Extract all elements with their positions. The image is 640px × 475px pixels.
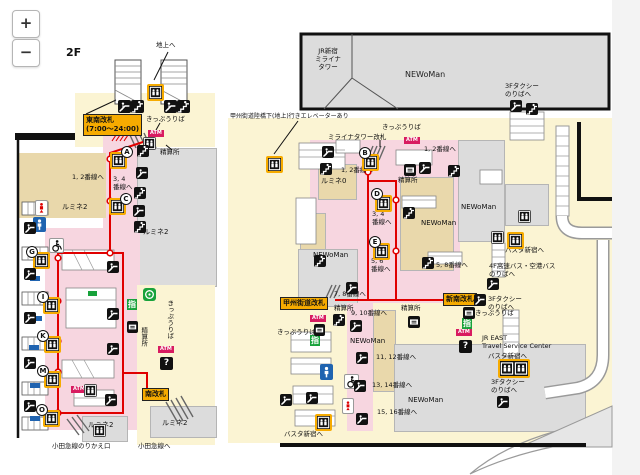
escalator-icon (280, 394, 292, 406)
stairs-icon (320, 163, 332, 175)
newoman-top-label: NEWoMan (405, 70, 445, 80)
escalator-icon (118, 100, 131, 113)
platform-sign (30, 416, 40, 421)
bus-4f-label: 4F高速バス・空港バスのりばへ (489, 263, 555, 279)
gate-miraina-label: ミライナタワー改札 (328, 134, 386, 142)
elevator-icon (491, 231, 504, 244)
right-platform-3-4-label: 3, 4番線へ (372, 211, 392, 227)
right-ticket-office-top-label: きっぷうりば (382, 124, 421, 132)
newoman-central-label: NEWoMan (421, 219, 456, 227)
stairs-icon (177, 100, 190, 113)
platform-sign (29, 345, 39, 350)
escalator-icon (350, 320, 362, 332)
jr-east-travel-service-center-label: JR EASTTravel Service Center (482, 335, 551, 351)
atm-icon: ATM (404, 137, 420, 144)
right-shop-tan-west (300, 213, 326, 251)
escalator-icon (24, 268, 36, 280)
elevator-icon (266, 156, 283, 173)
page-right-margin (612, 0, 640, 475)
tower-building-label: JR新宿ミライナタワー (306, 48, 350, 71)
elevator-icon (93, 424, 106, 437)
right-shop-tan-south (373, 310, 396, 392)
left-platform-1-2-label: 1, 2番線へ (72, 174, 104, 182)
left-ticket-office-label: きっぷうりば (146, 116, 185, 124)
elevator-letter-b: B (359, 147, 371, 159)
ticket-machine-icon (127, 321, 138, 333)
right-fare-adjustment-mid-label: 精算所 (398, 177, 418, 185)
reserved-seat-icon: 指 (462, 318, 472, 329)
escalator-icon (24, 312, 36, 324)
right-platform-15-16-label: 15, 16番線へ (377, 409, 417, 417)
elevator-letter-i: I (37, 291, 49, 303)
stairs-icon (314, 255, 326, 267)
newoman-south-label: NEWoMan (408, 396, 443, 404)
left-fare-adjustment-label: 精算所 (160, 149, 180, 157)
elevator-letter-k: K (37, 330, 49, 342)
lumine2-east-label: ルミネ2 (143, 228, 168, 236)
escalator-icon (107, 261, 119, 273)
station-map-canvas[interactable]: + − 2F (0, 0, 640, 475)
left-fare-adjustment-south-label: 精算所 (139, 327, 147, 347)
reserved-seat-machine-icon (143, 288, 156, 301)
escalator-icon (107, 343, 119, 355)
ticket-machine-icon (408, 316, 420, 328)
escalator-icon (419, 162, 431, 174)
gate-koshu-kaido-label: 甲州街道改札 (280, 297, 328, 310)
escalator-icon (322, 146, 334, 158)
elevator-icon (315, 414, 332, 431)
escalator-icon (105, 394, 117, 406)
busta-shinjuku-bottom-label: バスタ新宿へ (284, 431, 323, 439)
taxi-3f-south-label: 3Fタクシーのりばへ (491, 379, 525, 395)
escalator-icon (497, 396, 509, 408)
stairs-icon (134, 187, 146, 199)
ticket-machine-icon (463, 307, 475, 319)
escalator-icon (24, 400, 36, 412)
escalator-icon (356, 413, 368, 425)
stairs-icon (422, 257, 434, 269)
stairs-icon (131, 100, 144, 113)
atm-icon: ATM (148, 130, 164, 137)
left-ticket-office-south-label: きっぷうりば (165, 300, 173, 339)
stairs-icon (448, 165, 460, 177)
lumine2-bottom-right-label: ルミネ2 (162, 419, 187, 427)
left-platform-3-4-label: 3, 4番線へ (113, 176, 133, 192)
right-platform-11-12-label: 11, 12番線へ (376, 354, 416, 362)
stairs-icon (134, 221, 146, 233)
stairs-icon (403, 207, 415, 219)
escalator-icon (133, 205, 145, 217)
escalator-icon (474, 294, 486, 306)
right-platform-13-14-label: 13, 14番線へ (372, 382, 412, 390)
right-platform-9-10-label: 9, 10番線へ (351, 310, 387, 318)
escalator-icon (24, 357, 36, 369)
platform-sign (30, 383, 40, 388)
elevator-letter-e: E (369, 236, 381, 248)
stairs-icon (333, 314, 345, 326)
zoom-in-button[interactable]: + (12, 10, 40, 38)
aed-icon (35, 200, 48, 216)
elevator-icon (507, 232, 524, 249)
escalator-icon (164, 100, 177, 113)
elevator-letter-g: G (26, 246, 38, 258)
odakyu-line-label: 小田急線へ (138, 443, 171, 451)
odakyu-transfer-label: 小田急線のりかえ口 (52, 443, 111, 451)
escalator-icon (354, 380, 366, 392)
escalator-icon (306, 392, 318, 404)
left-to-ground-label: 地上へ (156, 42, 176, 50)
gate-tonan-label: 東南改札(7:00～24:00) (83, 114, 142, 136)
gate-minami-label: 南改札 (142, 388, 169, 401)
atm-icon: ATM (456, 329, 472, 336)
floor-label: 2F (66, 46, 81, 59)
restroom-icon (320, 364, 333, 380)
atm-icon: ATM (310, 315, 326, 322)
elevator-icon (518, 210, 531, 223)
information-icon: ? (459, 340, 472, 353)
busta-elevators-icon (498, 359, 530, 378)
escalator-icon (487, 278, 499, 290)
escalator-icon (24, 222, 36, 234)
escalator-icon (356, 352, 368, 364)
elevator-letter-m: M (37, 365, 49, 377)
information-icon: ? (160, 357, 173, 370)
elevator-letter-o: O (36, 404, 48, 416)
elevator-icon (147, 84, 164, 101)
escalator-icon (136, 167, 148, 179)
taxi-3f-north-label: 3Fタクシーのりばへ (505, 83, 539, 99)
stairs-icon (526, 103, 538, 115)
right-fare-adjustment-east-label: 精算所 (401, 305, 421, 313)
reserved-seat-icon: 指 (310, 335, 320, 346)
right-platform-5-8-label: 5, 8番線へ (436, 262, 468, 270)
reserved-seat-icon: 指 (127, 299, 137, 310)
newoman-south-west-label: NEWoMan (350, 337, 385, 345)
newoman-east-label: NEWoMan (461, 203, 496, 211)
zoom-out-button[interactable]: − (12, 39, 40, 67)
left-building-lumine2-east (137, 148, 217, 287)
right-platform-5-6-label: 5, 6番線へ (371, 258, 391, 274)
right-gray-newoman-east (458, 140, 505, 242)
elevator-icon (84, 384, 97, 397)
ticket-machine-icon (404, 164, 416, 176)
escalator-icon (510, 100, 522, 112)
stairs-icon (137, 145, 149, 157)
elevator-letter-d: D (371, 188, 383, 200)
escalator-icon (346, 282, 358, 294)
left-concourse-main (45, 228, 140, 430)
elevator-letter-c: C (120, 193, 132, 205)
lumine0-label: ルミネ0 (321, 177, 346, 185)
elevator-letter-a: A (121, 146, 133, 158)
atm-icon: ATM (158, 346, 174, 353)
elevator-note-label: 甲州街道陸橋下(地上)行きエレベーターあり (230, 113, 349, 120)
aed-icon (342, 398, 354, 414)
right-platform-1-2-east-label: 1, 2番線へ (424, 146, 456, 154)
lumine2-west-label: ルミネ2 (62, 203, 87, 211)
escalator-icon (107, 308, 119, 320)
ticket-machine-icon (314, 324, 325, 336)
wheelchair-icon (49, 238, 64, 253)
right-ticket-office-east-label: きっぷうりば (475, 310, 514, 318)
gate-shinminami-label: 新南改札 (443, 293, 477, 306)
